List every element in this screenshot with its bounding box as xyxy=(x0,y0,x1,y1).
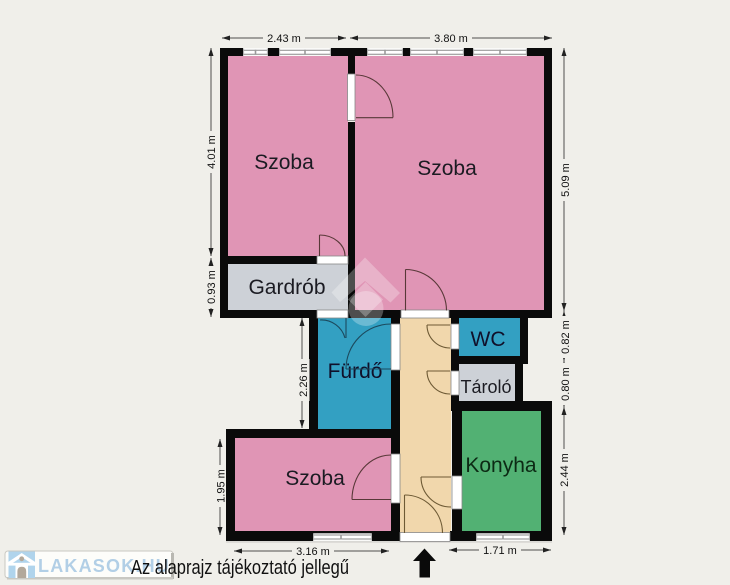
svg-text:3.80 m: 3.80 m xyxy=(434,33,468,45)
svg-text:Szoba: Szoba xyxy=(417,157,477,180)
svg-text:5.09 m: 5.09 m xyxy=(560,163,572,197)
svg-text:Szoba: Szoba xyxy=(285,467,345,490)
svg-text:Tároló: Tároló xyxy=(460,377,511,397)
svg-text:2.26 m: 2.26 m xyxy=(298,363,310,397)
svg-text:1.71 m: 1.71 m xyxy=(483,545,517,557)
svg-text:1.95 m: 1.95 m xyxy=(216,469,228,503)
svg-text:4.01 m: 4.01 m xyxy=(206,135,218,169)
svg-text:0.80 m: 0.80 m xyxy=(560,367,572,401)
svg-text:Fürdő: Fürdő xyxy=(328,360,383,383)
svg-text:Gardrób: Gardrób xyxy=(248,276,325,299)
svg-text:0.82 m: 0.82 m xyxy=(560,320,572,354)
svg-text:Szoba: Szoba xyxy=(254,151,314,174)
svg-text:WC: WC xyxy=(471,328,506,351)
svg-text:Konyha: Konyha xyxy=(465,454,537,477)
svg-text:Az alaprajz tájékoztató jelleg: Az alaprajz tájékoztató jellegű xyxy=(131,557,349,579)
svg-text:2.44 m: 2.44 m xyxy=(559,453,571,487)
svg-text:2.43 m: 2.43 m xyxy=(267,33,301,45)
svg-text:0.93 m: 0.93 m xyxy=(206,270,218,304)
